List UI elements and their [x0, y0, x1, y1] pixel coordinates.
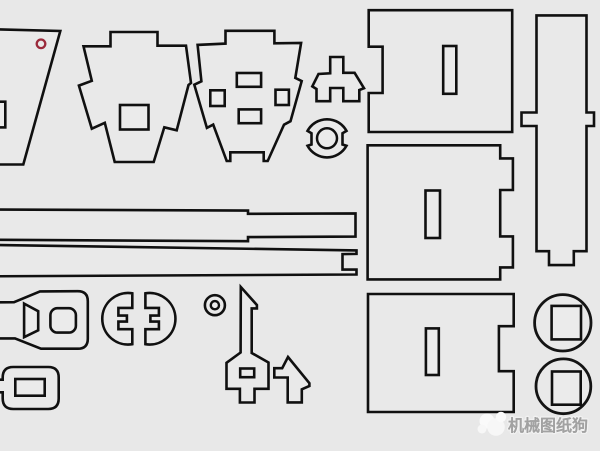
svg-text:机械图纸狗: 机械图纸狗 — [508, 416, 588, 435]
